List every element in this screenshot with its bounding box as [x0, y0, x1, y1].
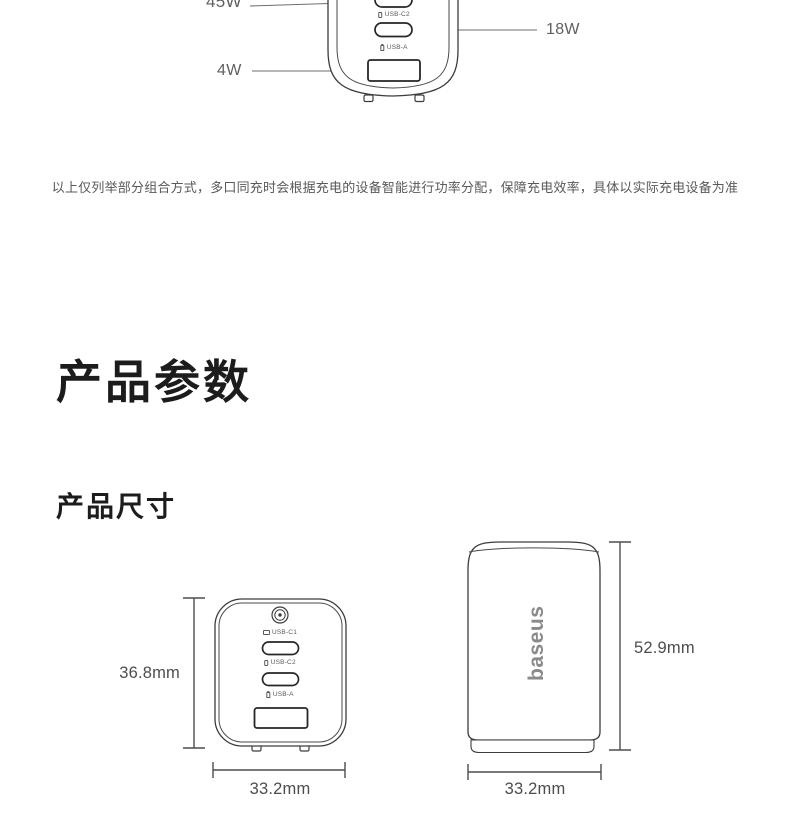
front-height-dimension: 36.8mm	[100, 664, 180, 683]
side-width-dimension: 33.2mm	[505, 780, 566, 799]
port-tag-label: USB-A	[387, 44, 408, 51]
charger-foot-right	[415, 95, 424, 102]
usb-c2-port	[263, 673, 299, 686]
port-tag-usb-a: USB-A	[380, 44, 407, 51]
port-tag-usb-c1: USB-C1	[263, 629, 297, 636]
base-plate	[471, 740, 594, 753]
port-tag-label: USB-C2	[385, 11, 410, 18]
front-width-dimension: 33.2mm	[250, 780, 311, 799]
port-tag-label: USB-C2	[271, 659, 296, 666]
port-tag-usb-c2: USB-C2	[264, 659, 296, 666]
port-tag-label: USB-C1	[272, 629, 297, 636]
usb-c1-port	[375, 0, 412, 7]
power-label-18w: 18W	[546, 21, 580, 39]
power-split-diagram: 45W 18W 4W USB-C2 USB-A	[0, 0, 790, 112]
side-view-art	[455, 535, 700, 785]
usb-c2-port	[375, 23, 412, 37]
battery-icon	[266, 692, 270, 698]
disclaimer-text: 以上仅列举部分组合方式，多口同充时会根据充电的设备智能进行功率分配，保障充电效率…	[0, 177, 790, 196]
battery-icon	[380, 45, 384, 51]
power-label-4w: 4W	[217, 62, 242, 80]
brand-logo-text: baseus	[526, 609, 548, 681]
port-tag-usb-c2: USB-C2	[378, 11, 410, 18]
section-title-params: 产品参数	[56, 355, 252, 410]
laptop-icon	[263, 630, 270, 635]
phone-icon	[264, 660, 268, 666]
section-title-size: 产品尺寸	[56, 490, 176, 524]
product-detail-page: 45W 18W 4W USB-C2 USB-A 以上仅列举部分组合方式，多口同充…	[0, 0, 790, 817]
usb-a-port	[368, 60, 420, 81]
charger-foot-left	[364, 95, 373, 102]
brand-badge-dot	[278, 613, 281, 616]
side-height-dimension: 52.9mm	[634, 639, 695, 658]
phone-icon	[378, 12, 382, 18]
usb-c1-port	[263, 642, 299, 655]
power-label-45w: 45W	[206, 0, 242, 12]
port-tag-label: USB-A	[273, 691, 294, 698]
side-view-diagram	[455, 535, 700, 785]
usb-a-port	[255, 708, 308, 728]
port-tag-usb-a: USB-A	[266, 691, 293, 698]
